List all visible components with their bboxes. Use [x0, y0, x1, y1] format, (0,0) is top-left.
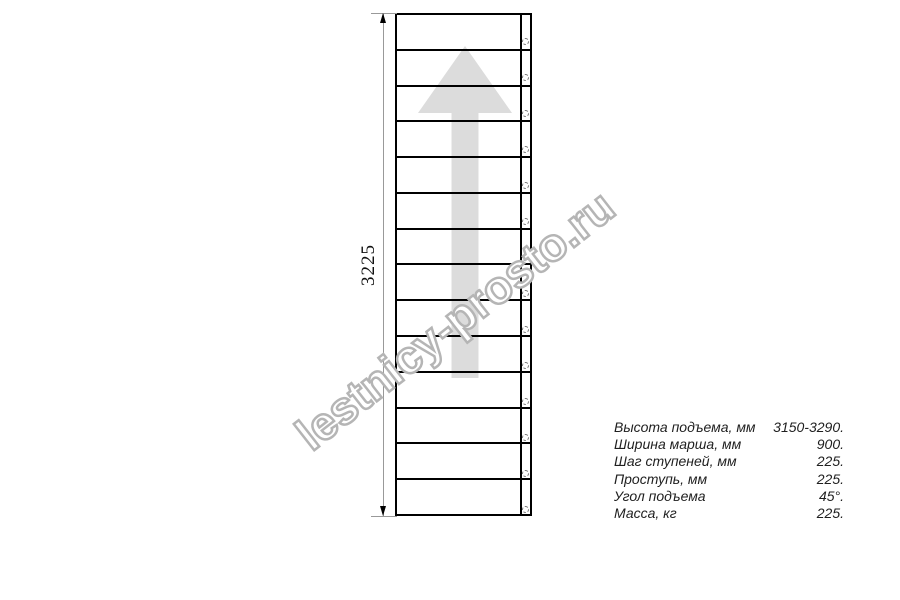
stair-tread — [397, 478, 530, 514]
spec-row: Угол подъема45°. — [614, 488, 844, 505]
spec-label: Угол подъема — [614, 488, 706, 505]
stair-tread — [397, 442, 530, 478]
spec-value: 225. — [817, 471, 844, 488]
spec-value: 900. — [817, 436, 844, 453]
stair-tread — [397, 156, 530, 192]
spec-value: 225. — [817, 453, 844, 470]
spec-value: 45°. — [819, 488, 844, 505]
spec-label: Высота подъема, мм — [614, 419, 756, 436]
spec-row: Ширина марша, мм900. — [614, 436, 844, 453]
spec-label: Ширина марша, мм — [614, 436, 741, 453]
dimension-arrowhead-top — [380, 13, 386, 23]
dimension-line — [383, 13, 384, 516]
spec-label: Шаг ступеней, мм — [614, 453, 737, 470]
stair-tread — [397, 120, 530, 156]
drawing-canvas: 3225 lestnicy-prosto.ru Высота подъема, … — [0, 0, 900, 600]
spec-value: 3150-3290. — [773, 419, 844, 436]
spec-row: Масса, кг225. — [614, 505, 844, 522]
spec-row: Шаг ступеней, мм225. — [614, 453, 844, 470]
stair-tread — [397, 85, 530, 121]
spec-label: Масса, кг — [614, 505, 677, 522]
stair-tread — [397, 49, 530, 85]
stair-tread — [397, 407, 530, 443]
specs-table: Высота подъема, мм3150-3290.Ширина марша… — [614, 419, 844, 522]
stair-tread — [397, 192, 530, 228]
spec-label: Проступь, мм — [614, 471, 707, 488]
spec-value: 225. — [817, 505, 844, 522]
dimension-label: 3225 — [358, 244, 380, 286]
spec-row: Высота подъема, мм3150-3290. — [614, 419, 844, 436]
dimension-extension-bottom — [371, 516, 397, 517]
stair-tread — [397, 15, 530, 49]
spec-row: Проступь, мм225. — [614, 471, 844, 488]
dimension-arrowhead-bottom — [380, 506, 386, 516]
